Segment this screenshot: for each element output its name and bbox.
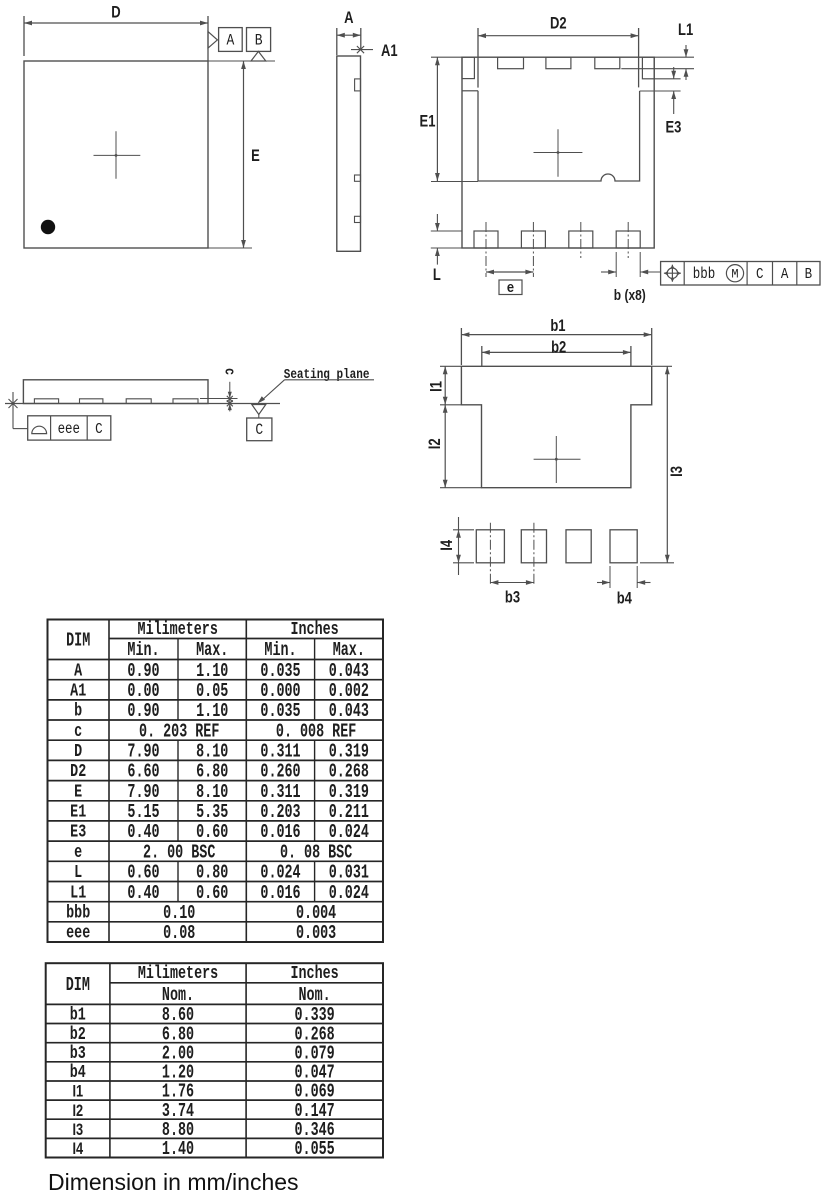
svg-text:0.035: 0.035 — [260, 701, 300, 723]
svg-text:D: D — [111, 3, 121, 22]
svg-text:0.031: 0.031 — [329, 862, 369, 884]
svg-text:C: C — [95, 422, 102, 438]
svg-text:b2: b2 — [70, 1024, 86, 1045]
svg-text:L: L — [74, 862, 82, 883]
svg-text:B: B — [805, 267, 812, 283]
svg-text:0.00: 0.00 — [127, 681, 159, 703]
svg-text:A: A — [344, 9, 354, 28]
svg-text:0.055: 0.055 — [295, 1139, 335, 1161]
svg-text:0.311: 0.311 — [260, 782, 300, 804]
svg-text:0.043: 0.043 — [329, 661, 369, 683]
svg-text:I2: I2 — [426, 438, 445, 449]
svg-text:0.260: 0.260 — [260, 761, 300, 783]
svg-text:C: C — [255, 422, 263, 439]
svg-text:0.016: 0.016 — [260, 883, 300, 905]
svg-text:b4: b4 — [70, 1062, 86, 1083]
svg-text:0.08: 0.08 — [163, 923, 195, 945]
svg-text:A: A — [227, 32, 235, 49]
svg-text:0.40: 0.40 — [127, 822, 159, 844]
svg-text:E3: E3 — [70, 822, 86, 843]
svg-text:DIM: DIM — [66, 630, 90, 652]
svg-text:0.003: 0.003 — [296, 923, 336, 945]
svg-text:Min.: Min. — [127, 640, 159, 662]
svg-text:M: M — [731, 267, 738, 282]
svg-text:0.311: 0.311 — [260, 741, 300, 763]
svg-text:0.90: 0.90 — [127, 701, 159, 723]
svg-text:bbb: bbb — [66, 903, 90, 924]
svg-text:6.80: 6.80 — [196, 761, 228, 783]
svg-text:I2: I2 — [72, 1101, 83, 1120]
svg-text:b: b — [74, 701, 82, 722]
svg-text:A1: A1 — [381, 41, 398, 60]
svg-text:Inches: Inches — [290, 619, 338, 639]
svg-text:I4: I4 — [438, 539, 457, 550]
svg-text:0.024: 0.024 — [329, 822, 369, 844]
svg-text:0.60: 0.60 — [127, 862, 159, 884]
svg-text:5.15: 5.15 — [127, 802, 159, 824]
svg-text:b1: b1 — [70, 1005, 86, 1026]
svg-text:c: c — [222, 368, 238, 375]
svg-text:0. 203 REF: 0. 203 REF — [139, 721, 219, 743]
svg-text:C: C — [756, 267, 763, 283]
svg-text:b4: b4 — [617, 589, 633, 608]
svg-text:E1: E1 — [420, 112, 436, 131]
svg-text:B: B — [255, 32, 263, 49]
svg-text:6.60: 6.60 — [127, 761, 159, 783]
svg-text:0.043: 0.043 — [329, 701, 369, 723]
svg-text:L1: L1 — [678, 21, 693, 40]
svg-text:0.016: 0.016 — [260, 822, 300, 844]
svg-text:b1: b1 — [550, 317, 565, 336]
svg-text:0.60: 0.60 — [196, 883, 228, 905]
svg-text:0.268: 0.268 — [329, 761, 369, 783]
svg-text:Max.: Max. — [333, 640, 365, 662]
svg-text:0.211: 0.211 — [329, 802, 369, 824]
svg-text:0.80: 0.80 — [196, 862, 228, 884]
svg-text:Dimension in mm/inches: Dimension in mm/inches — [48, 1169, 299, 1195]
svg-text:I4: I4 — [72, 1139, 83, 1158]
svg-text:I3: I3 — [668, 466, 687, 477]
svg-text:2. 00 BSC: 2. 00 BSC — [143, 842, 215, 864]
svg-text:A: A — [74, 660, 82, 681]
svg-text:0.319: 0.319 — [329, 741, 369, 763]
svg-text:Milimeters: Milimeters — [138, 963, 218, 983]
svg-text:DIM: DIM — [66, 975, 90, 997]
svg-text:Milimeters: Milimeters — [138, 619, 218, 639]
svg-text:0.035: 0.035 — [260, 661, 300, 683]
svg-text:0.000: 0.000 — [260, 681, 300, 703]
svg-text:b2: b2 — [551, 338, 566, 357]
svg-text:L: L — [433, 265, 441, 284]
svg-text:I1: I1 — [427, 381, 446, 392]
svg-text:b3: b3 — [505, 588, 520, 607]
svg-text:1.40: 1.40 — [162, 1139, 194, 1161]
svg-text:0.002: 0.002 — [329, 681, 369, 703]
svg-text:7.90: 7.90 — [127, 741, 159, 763]
svg-text:D: D — [74, 741, 82, 762]
svg-text:A1: A1 — [70, 681, 86, 702]
svg-text:0. 008 REF: 0. 008 REF — [276, 721, 356, 743]
svg-text:Nom.: Nom. — [299, 985, 331, 1007]
svg-text:b (x8): b (x8) — [614, 287, 646, 304]
svg-text:E: E — [251, 147, 260, 166]
svg-text:8.10: 8.10 — [196, 741, 228, 763]
svg-text:0.203: 0.203 — [260, 802, 300, 824]
svg-text:D2: D2 — [550, 14, 567, 33]
svg-text:7.90: 7.90 — [127, 782, 159, 804]
svg-text:eee: eee — [58, 421, 80, 439]
svg-text:1.10: 1.10 — [196, 701, 228, 723]
svg-text:0.10: 0.10 — [163, 903, 195, 925]
svg-text:eee: eee — [66, 923, 90, 944]
svg-text:0.90: 0.90 — [127, 661, 159, 683]
svg-text:0.05: 0.05 — [196, 681, 228, 703]
svg-text:Nom.: Nom. — [162, 985, 194, 1007]
svg-text:Min.: Min. — [264, 640, 296, 662]
svg-text:0.004: 0.004 — [296, 903, 336, 925]
svg-text:0. 08 BSC: 0. 08 BSC — [280, 842, 352, 864]
svg-text:0.60: 0.60 — [196, 822, 228, 844]
svg-text:c: c — [74, 721, 82, 742]
svg-text:0.40: 0.40 — [127, 883, 159, 905]
svg-text:E3: E3 — [665, 118, 681, 137]
svg-text:Inches: Inches — [290, 963, 338, 983]
svg-text:I1: I1 — [72, 1082, 83, 1101]
svg-text:5.35: 5.35 — [196, 802, 228, 824]
svg-text:1.10: 1.10 — [196, 661, 228, 683]
svg-text:b3: b3 — [70, 1043, 86, 1064]
svg-text:0.024: 0.024 — [260, 862, 300, 884]
svg-text:0.319: 0.319 — [329, 782, 369, 804]
svg-text:E: E — [74, 782, 82, 803]
svg-text:I3: I3 — [72, 1120, 83, 1139]
svg-text:Max.: Max. — [196, 640, 228, 662]
svg-text:0.024: 0.024 — [329, 883, 369, 905]
svg-text:E1: E1 — [70, 802, 86, 823]
svg-text:bbb: bbb — [693, 266, 715, 284]
svg-text:L1: L1 — [70, 882, 86, 903]
svg-text:e: e — [74, 842, 82, 863]
svg-text:e: e — [507, 281, 514, 297]
svg-text:8.10: 8.10 — [196, 782, 228, 804]
svg-text:A: A — [781, 267, 789, 283]
svg-text:D2: D2 — [70, 761, 86, 782]
